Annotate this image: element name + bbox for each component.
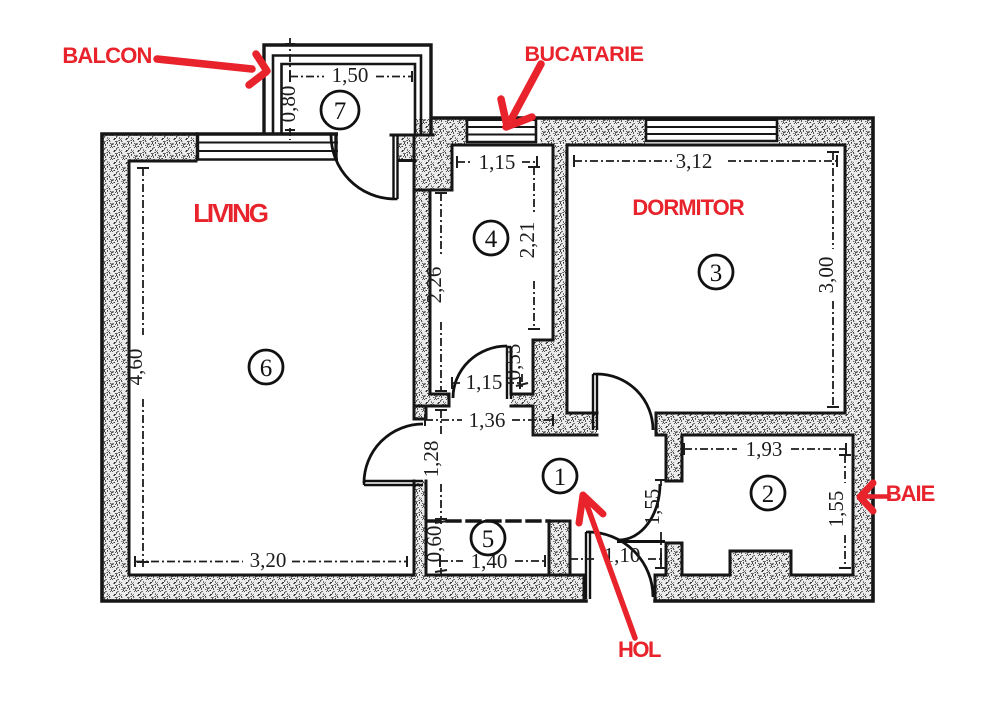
svg-text:1,55: 1,55 (824, 491, 848, 528)
svg-text:HOL: HOL (618, 637, 661, 662)
svg-text:1,93: 1,93 (746, 437, 783, 461)
svg-text:3: 3 (710, 260, 723, 287)
svg-text:2,21: 2,21 (515, 222, 539, 259)
svg-text:0,60: 0,60 (422, 526, 446, 563)
svg-text:7: 7 (334, 98, 347, 125)
svg-text:2: 2 (762, 481, 775, 508)
svg-text:1,36: 1,36 (469, 408, 506, 432)
svg-text:BAIE: BAIE (886, 481, 935, 506)
svg-text:2,26: 2,26 (422, 267, 446, 304)
svg-text:4,60: 4,60 (123, 349, 147, 386)
svg-text:1,50: 1,50 (332, 63, 369, 87)
svg-text:LIVING: LIVING (193, 198, 267, 228)
svg-text:5: 5 (482, 526, 495, 553)
svg-text:3,20: 3,20 (250, 548, 287, 572)
svg-text:0,55: 0,55 (501, 344, 525, 381)
svg-text:1,55: 1,55 (640, 489, 664, 526)
svg-text:0,80: 0,80 (276, 86, 300, 123)
svg-text:4: 4 (485, 226, 498, 253)
svg-text:3,12: 3,12 (676, 149, 713, 173)
svg-text:1,15: 1,15 (466, 370, 503, 394)
svg-text:1,28: 1,28 (419, 441, 443, 478)
svg-text:BALCON: BALCON (62, 43, 151, 68)
svg-text:3,00: 3,00 (814, 257, 838, 294)
svg-text:1: 1 (554, 464, 567, 491)
svg-text:DORMITOR: DORMITOR (632, 195, 744, 220)
svg-text:6: 6 (260, 355, 273, 382)
svg-text:1,15: 1,15 (479, 150, 516, 174)
